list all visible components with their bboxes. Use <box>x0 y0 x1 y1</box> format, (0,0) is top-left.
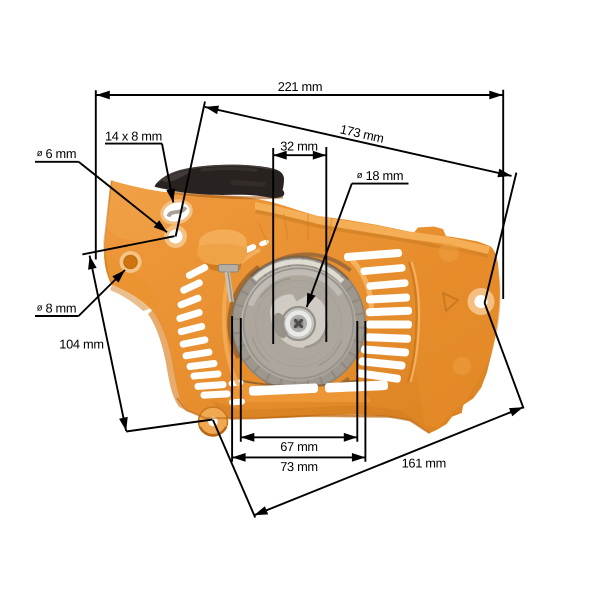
svg-text:14 x 8 mm: 14 x 8 mm <box>105 128 162 143</box>
svg-text:104 mm: 104 mm <box>59 336 103 351</box>
svg-text:32 mm: 32 mm <box>280 139 318 154</box>
svg-text:ø 6 mm: ø 6 mm <box>37 146 77 161</box>
svg-text:73 mm: 73 mm <box>280 459 318 474</box>
svg-text:221 mm: 221 mm <box>278 79 322 94</box>
svg-text:161 mm: 161 mm <box>402 455 446 470</box>
svg-text:ø 8 mm: ø 8 mm <box>37 301 77 316</box>
svg-text:ø 18 mm: ø 18 mm <box>357 168 403 183</box>
svg-text:67 mm: 67 mm <box>280 439 318 454</box>
